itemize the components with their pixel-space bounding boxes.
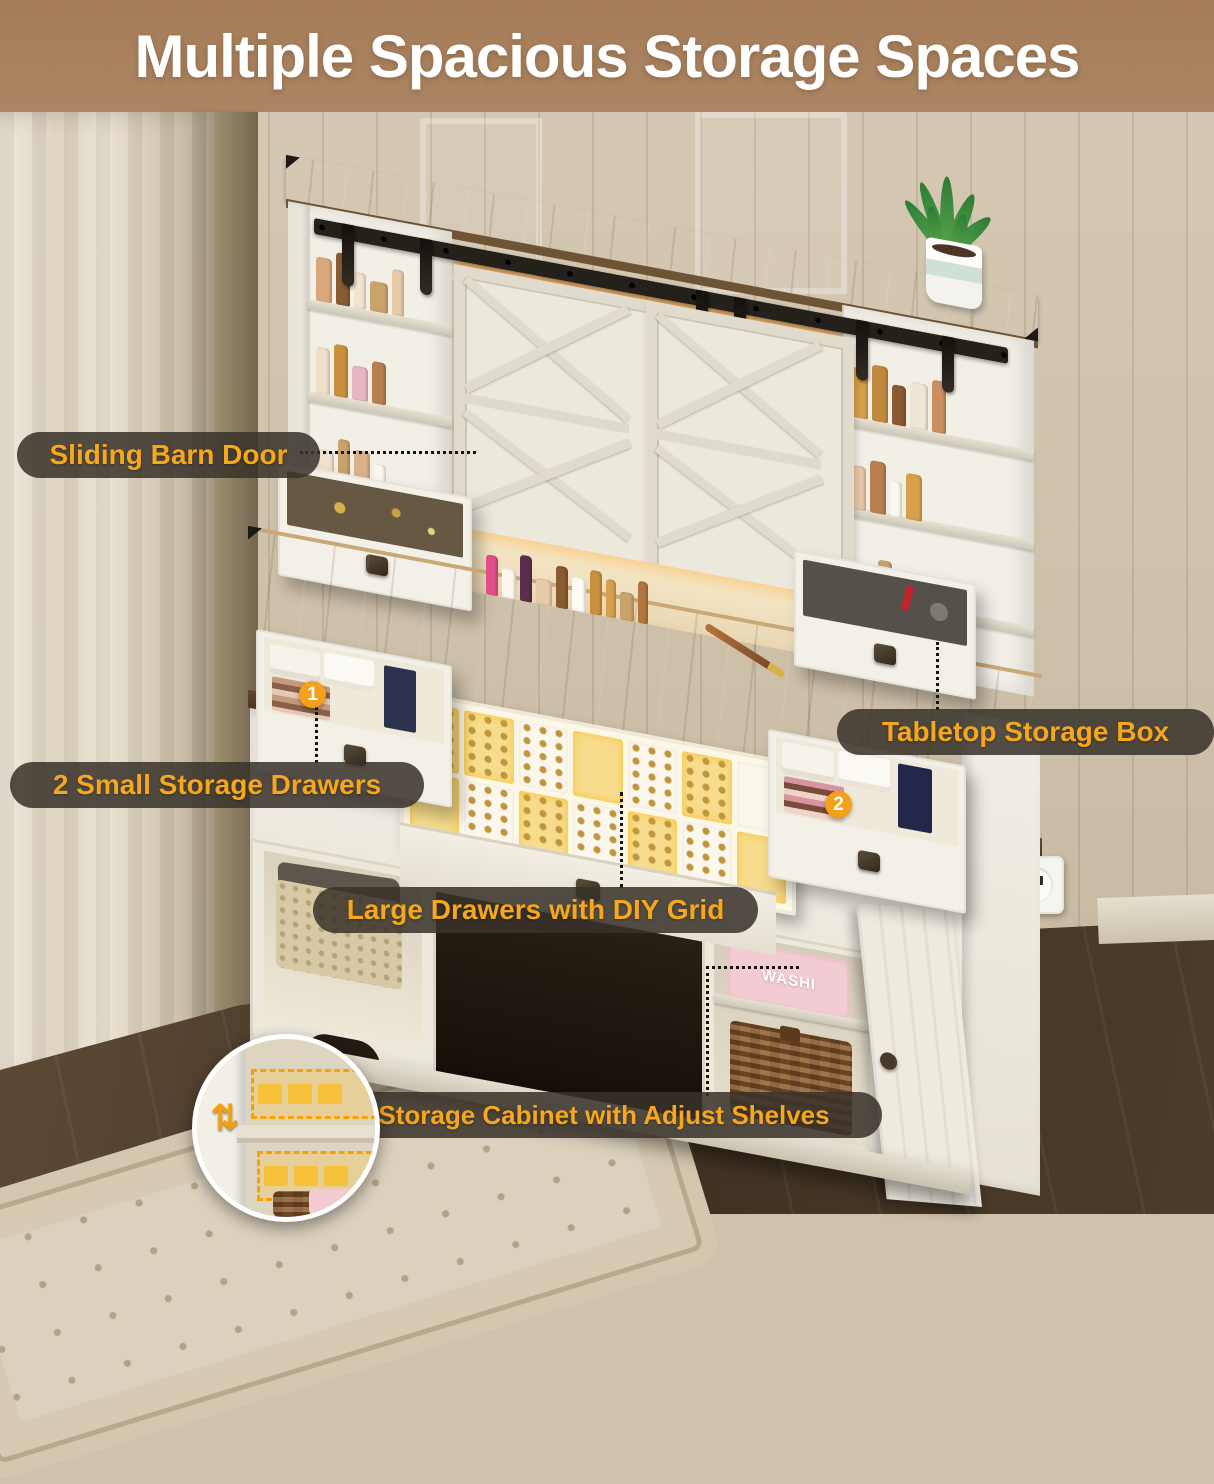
jar [620,591,634,622]
grid-cell [682,751,731,825]
highlight-peg [324,1166,348,1186]
inset-shelf-board [237,1125,375,1138]
callout-storage-cabinet-adjust-shelves: Storage Cabinet with Adjust Shelves [326,1092,882,1138]
title-band: Multiple Spacious Storage Spaces [0,0,1214,112]
bottle [910,382,928,431]
plant-soil [932,242,976,260]
badge-2-number: 2 [833,794,844,816]
callout-label: Tabletop Storage Box [882,716,1169,748]
jar [502,567,516,600]
rail-strap [942,336,954,394]
callout-label: 2 Small Storage Drawers [53,769,381,801]
baseboard [1097,894,1214,944]
bottle [316,256,332,303]
door-x-brace [654,475,823,548]
callout-large-drawers-diy-grid: Large Drawers with DIY Grid [313,887,758,933]
connector-large-drawer [620,792,623,888]
jar [536,578,552,607]
bottle [334,344,348,399]
dark-book [898,763,932,833]
box-knob [874,643,896,666]
bottle [590,570,602,616]
product-infographic: { "title": "Multiple Spacious Storage Sp… [0,0,1214,1214]
jar [370,280,388,313]
grid-cell [519,720,568,794]
bottle [354,271,366,309]
door-x-brace [462,439,631,512]
brush [638,581,648,625]
adjust-arrows-icon: ⇅ [211,1101,240,1135]
connector-storage-cabinet [706,966,799,1096]
connector-badge-1 [315,707,318,763]
adjustable-shelf-zoom-inset: ⇅ [192,1034,380,1222]
rail-strap [856,319,868,381]
grid-cell [628,741,677,815]
bottle [852,465,866,512]
grid-cell [464,710,513,784]
right-side-panel [962,711,1040,1196]
highlight-peg [264,1166,288,1186]
grid-cell [573,731,622,805]
curtain-folds [0,110,216,1085]
inset-pink-box [309,1189,365,1215]
drawer-knob [858,850,880,873]
callout-two-small-storage-drawers: 2 Small Storage Drawers [10,762,424,808]
plant-pot [926,237,982,311]
badge-drawer-2: 2 [825,791,852,818]
connector-barn-door [300,451,476,454]
highlight-peg [318,1084,342,1104]
bottle [906,473,922,522]
door-x-brace [655,341,823,429]
lipstick [606,579,616,619]
bottle [392,269,404,317]
callout-tabletop-storage-box: Tabletop Storage Box [837,709,1214,755]
bottle [372,361,386,406]
badge-drawer-1: 1 [299,681,326,708]
door-knob [879,1052,898,1071]
badge-1-number: 1 [307,684,318,706]
dark-book [384,665,416,733]
highlight-peg [288,1084,312,1104]
bottle [316,346,330,395]
callout-label: Large Drawers with DIY Grid [347,894,725,926]
bottle [892,384,906,427]
rail-strap [420,238,432,296]
highlight-peg [294,1166,318,1186]
connector-tabletop-box [936,642,939,710]
bottle [890,480,902,518]
callout-label: Sliding Barn Door [50,439,288,471]
inset-shelf-position-highlight [251,1069,377,1119]
page-title: Multiple Spacious Storage Spaces [135,22,1080,91]
bottle [870,460,886,515]
perfume [486,554,498,596]
bottle [556,565,568,609]
callout-sliding-barn-door: Sliding Barn Door [17,432,320,478]
bottle [872,364,888,423]
rail-strap [342,223,354,287]
perfume [520,555,532,603]
callout-label: Storage Cabinet with Adjust Shelves [378,1100,829,1131]
bottle [572,576,586,613]
door-x-brace [463,305,631,393]
highlight-peg [258,1084,282,1104]
bottle [352,365,368,402]
